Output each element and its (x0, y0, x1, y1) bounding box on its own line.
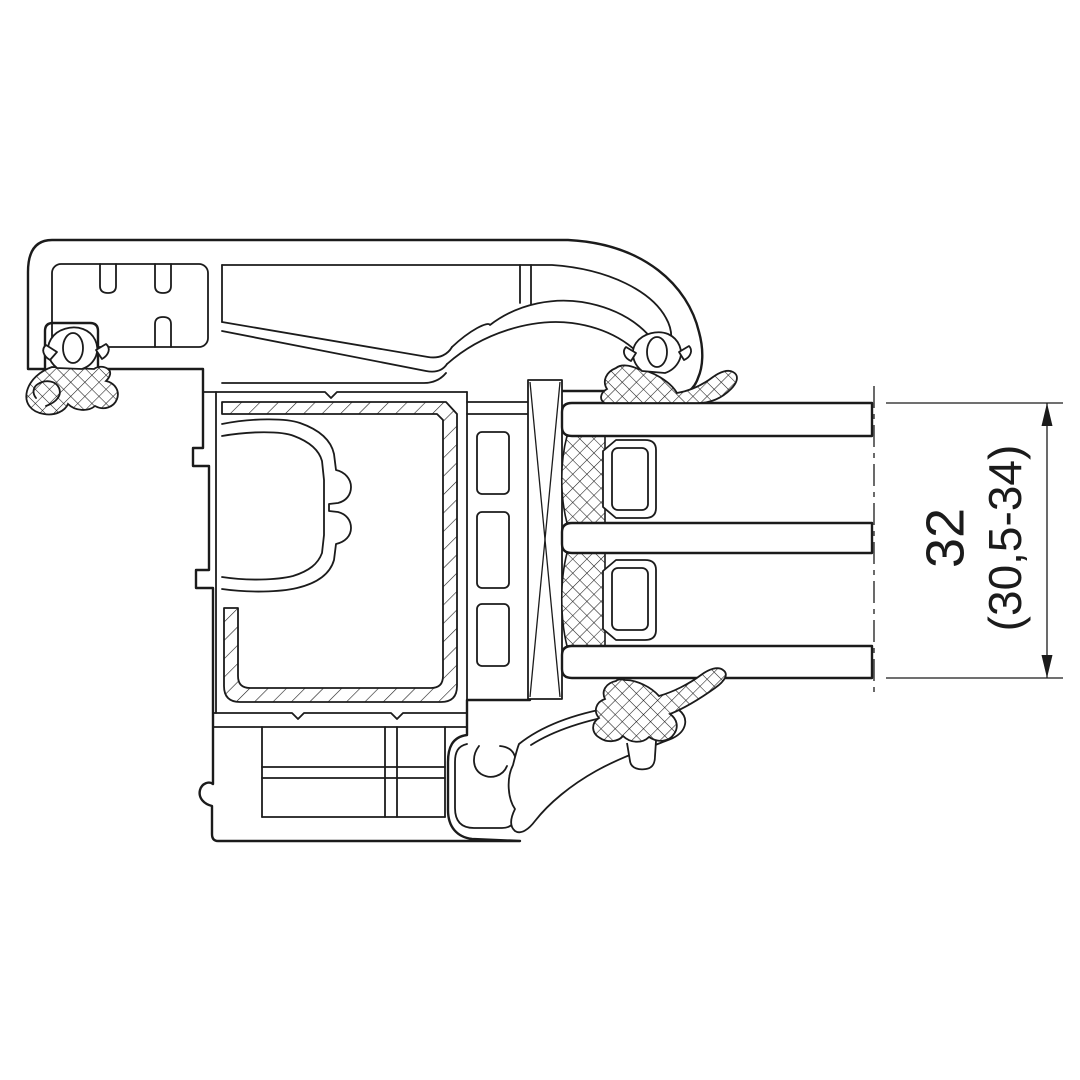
glazing-packer (528, 380, 562, 699)
bead-clip-hook (474, 746, 507, 777)
technical-drawing-canvas: 32 (30,5-34) (0, 0, 1080, 1080)
dimension-annotation: 32 (30,5-34) (886, 403, 1063, 678)
window-profile-section-drawing: 32 (30,5-34) (0, 0, 1080, 1080)
dimension-arrow-up (1042, 403, 1053, 426)
glazing-gasket-bottom (593, 668, 726, 742)
spacer-bar-2 (603, 560, 656, 640)
glass-unit (562, 386, 874, 696)
glazing-bead-gasket-channel (627, 741, 656, 769)
spacer-bar-1 (603, 440, 656, 518)
dimension-text-nominal: 32 (915, 508, 975, 568)
glass-pane-2 (562, 523, 872, 553)
edge-sealant-bottom (562, 553, 605, 646)
glass-pane-1 (562, 403, 872, 436)
frame-gasket-eyelet (63, 333, 83, 363)
bead-clip-pocket (455, 744, 516, 828)
dimension-arrow-down (1042, 655, 1053, 678)
edge-sealant-top (562, 436, 605, 523)
glazing-gasket-top-eyelet (647, 337, 667, 367)
dimension-text-range: (30,5-34) (979, 445, 1031, 632)
glazing-gasket-bottom-body (593, 668, 726, 742)
frame-gasket-body (26, 367, 118, 415)
